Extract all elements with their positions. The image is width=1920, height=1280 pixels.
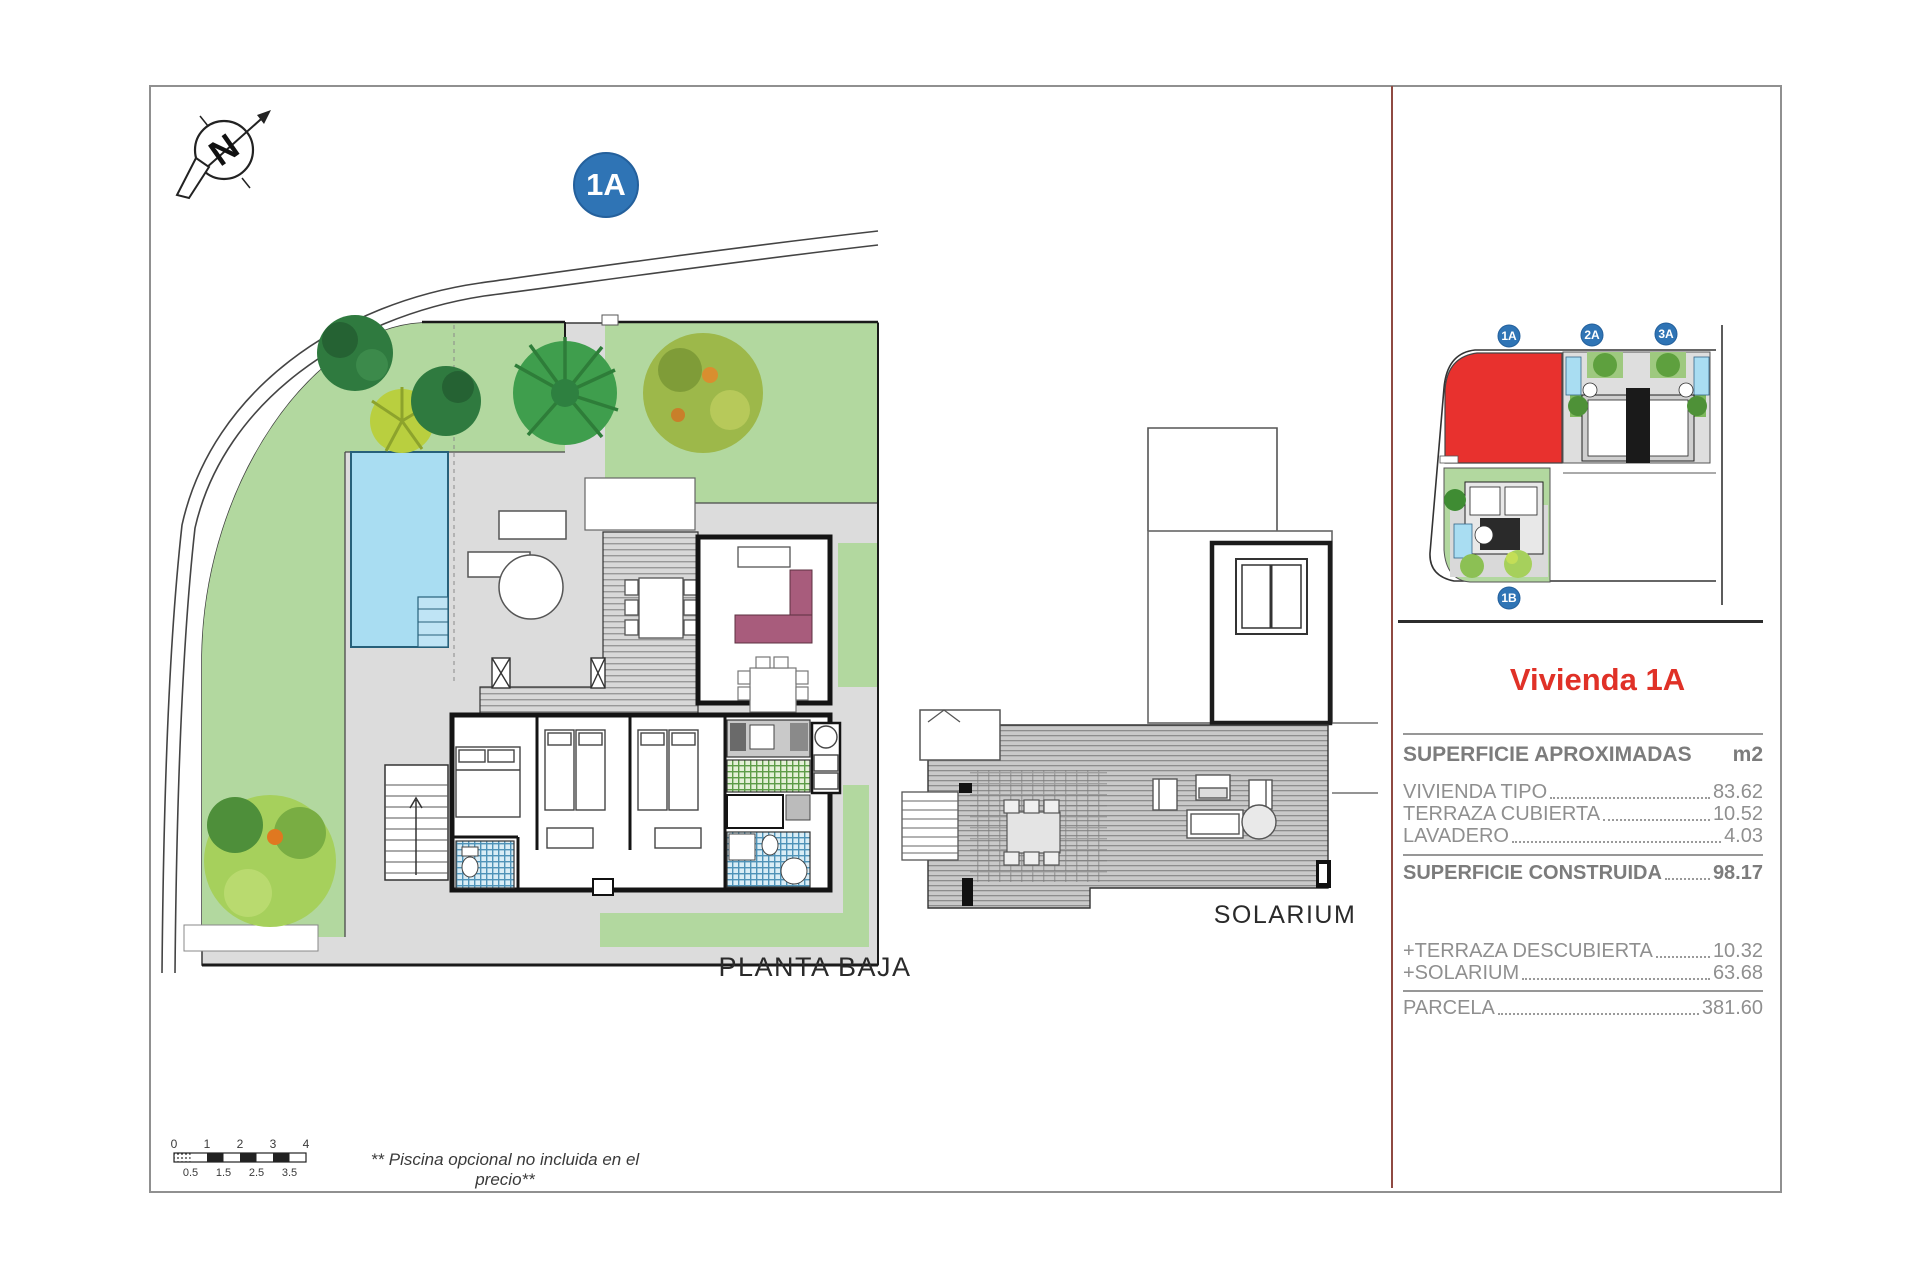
laundry [727,760,810,792]
leader-dots [1550,797,1710,799]
table-rows: VIVIENDA TIPO 83.62 TERRAZA CUBIERTA 10.… [1403,781,1763,847]
bedroom-block [452,715,840,895]
panel-title: Vivienda 1A [1430,662,1765,698]
tree-dark-2 [411,366,481,436]
table-row: +SOLARIUM 63.68 [1403,962,1763,984]
bed-double [456,747,520,817]
table-parcel-row: PARCELA 381.60 [1403,997,1763,1019]
entry-step [593,879,613,895]
scale-tick: 0 [171,1137,178,1151]
solarium-dining-set [1004,800,1060,865]
living-room [698,537,830,712]
site-map: 1A 2A 3A 1B [1420,300,1750,630]
closet [786,795,810,820]
leader-dots [1656,956,1710,958]
drawing-sheet: N 1A [0,0,1920,1280]
stub-gap [1319,864,1327,883]
plots-2a-3a [1563,352,1716,473]
stair-housing [1148,531,1332,723]
table-row: +TERRAZA DESCUBIERTA 10.32 [1403,940,1763,962]
street-lines [1332,723,1378,793]
tree-dark-1 [317,315,393,391]
side-porch [812,723,840,793]
kitchen [727,720,810,757]
scale-tick: 3 [270,1137,277,1151]
leader-dots [1498,1013,1699,1015]
table-rule [1403,854,1763,856]
table-rule [1403,990,1763,992]
plot-1a-gate [1440,456,1458,463]
scale-tick: 1.5 [216,1167,231,1179]
table-row: VIVIENDA TIPO 83.62 [1403,781,1763,803]
bathroom-1 [456,841,514,888]
panel-divider-line [1391,86,1393,1188]
scale-tick: 1 [204,1137,211,1151]
planta-baja-label: PLANTA BAJA [690,952,940,983]
pool-option-note: ** Piscina opcional no incluida en el pr… [350,1150,660,1190]
table-header: SUPERFICIE APROXIMADAS m2 [1403,743,1763,767]
solarium-plan-label: SOLARIUM [1185,901,1385,930]
site-badge-3a: 3A [1658,327,1674,341]
unit-badge-1a: 1A [573,152,639,218]
areas-table: SUPERFICIE APROXIMADAS m2 VIVIENDA TIPO … [1403,730,1763,1019]
table-header-unit: m2 [1733,743,1763,767]
tree-large-right [643,333,763,453]
roof-outline [1148,428,1277,531]
table-row: LAVADERO 4.03 [1403,825,1763,847]
scale-tick: 0.5 [183,1167,198,1179]
scale-bar-segments [174,1153,306,1162]
site-badge-1a: 1A [1501,329,1517,343]
exterior-stairs [385,765,448,880]
solarium-plan [900,420,1380,950]
scale-tick: 2.5 [249,1167,264,1179]
leader-dots [1522,978,1710,980]
north-arrow-icon: N [172,100,277,205]
gate [602,315,618,325]
panel-separator-line [1398,620,1763,623]
hall-closet [727,795,783,828]
site-badge-2a: 2A [1584,328,1600,342]
carport-slab [585,478,695,530]
tree-large-bottom [204,795,336,927]
parking-bay [184,925,318,951]
leader-dots [1665,878,1710,880]
site-badge-1b: 1B [1501,591,1517,605]
scale-bar: 0 1 2 3 4 0.5 1.5 2.5 3.5 [168,1136,328,1186]
leader-dots [1603,819,1710,821]
table-header-label: SUPERFICIE APROXIMADAS [1403,743,1692,767]
scale-tick: 3.5 [282,1167,297,1179]
table-rule [1403,733,1763,735]
swimming-pool [351,452,448,647]
leader-dots [1512,841,1721,843]
bathroom-2 [727,832,810,887]
table-total-row: SUPERFICIE CONSTRUIDA 98.17 [1403,862,1763,884]
plot-1b [1444,468,1550,582]
scale-tick: 2 [237,1137,244,1151]
plot-1a-highlight [1445,353,1562,463]
unit-badge-1a-label: 1A [586,167,626,203]
scale-tick: 4 [303,1137,310,1151]
terrace-dining-set [625,578,697,638]
table-extras: +TERRAZA DESCUBIERTA 10.32 +SOLARIUM 63.… [1403,940,1763,984]
ground-floor-plan [150,225,890,1005]
table-row: TERRAZA CUBIERTA 10.52 [1403,803,1763,825]
